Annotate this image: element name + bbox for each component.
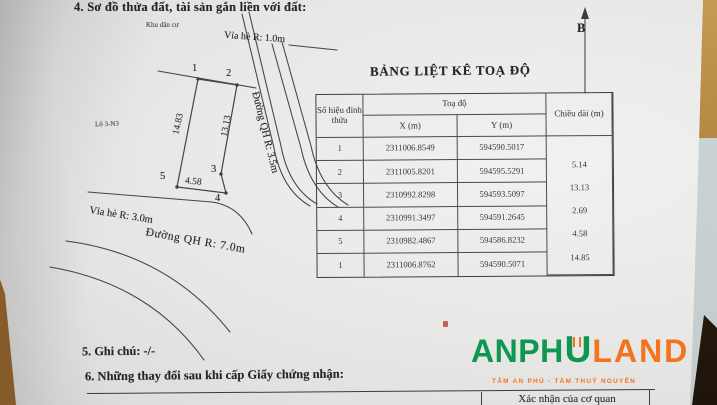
signature-table-divider: [481, 392, 482, 405]
boundary-extension-line: [158, 71, 256, 88]
row-vertex-id: 4: [317, 207, 364, 231]
vertex-point: [176, 186, 178, 188]
road-curve: [66, 241, 230, 332]
length-column: 5.14 13.13 2.69 4.58 14.85: [547, 136, 614, 276]
edge-length-right: 13.13: [220, 115, 234, 138]
label-underline: [289, 45, 337, 50]
col-header-length: Chiều dài (m): [546, 93, 612, 136]
vertex-point: [225, 192, 227, 194]
row-vertex-id: 1: [317, 254, 364, 278]
col-header-y: Y (m): [458, 114, 547, 137]
vertex-label-3: 3: [211, 164, 216, 175]
north-arrow-head: [581, 7, 589, 19]
sidewalk-bottom-label: Vỉa hè R: 3.0m: [89, 205, 154, 226]
vertex-label-2: 2: [226, 68, 231, 79]
edge-length-value: 5.14: [572, 153, 587, 176]
edge-length-value: 13.13: [570, 176, 590, 199]
signature-cell-label: Xác nhận của cơ quan: [486, 393, 648, 405]
row-x-value: 2310982.4867: [364, 230, 458, 254]
edge-length-left: 14.83: [172, 113, 186, 136]
edge-length-value: 14.85: [570, 246, 590, 269]
signature-table-divider: [649, 390, 650, 405]
logo-u-orange-bar: [579, 337, 582, 347]
row-vertex-id: 2: [317, 161, 364, 185]
vertex-point: [236, 84, 238, 86]
coordinate-table-title: BẢNG LIỆT KÊ TOẠ ĐỘ: [370, 62, 531, 79]
coordinate-table: Số hiệu đỉnh thửa Toạ độ Chiều dài (m) X…: [315, 92, 614, 278]
road-bottom-label: Đường QH R: 7.0m: [145, 226, 247, 255]
section6-heading: 6. Những thay đổi sau khi cấp Giấy chứng…: [85, 367, 344, 385]
row-x-value: 2311005.8201: [364, 160, 458, 184]
row-y-value: 594590.5017: [458, 136, 547, 160]
section5-heading: 5. Ghi chú: -/-: [82, 344, 155, 360]
col-header-coords: Toạ độ: [363, 93, 546, 115]
row-y-value: 594586.8232: [458, 229, 547, 253]
logo-u-glyph: U: [565, 329, 592, 370]
section4-heading: 4. Sơ đồ thửa đất, tài sản gắn liền với …: [74, 0, 307, 15]
vertex-label-5: 5: [160, 171, 165, 182]
logo-text-anph: ANPH: [471, 333, 564, 370]
row-vertex-id: 3: [317, 184, 364, 208]
photographed-document: 4. Sơ đồ thửa đất, tài sản gắn liền với …: [0, 0, 717, 405]
row-vertex-id: 1: [317, 138, 364, 162]
north-label: B: [577, 21, 585, 36]
col-header-vertex: Số hiệu đỉnh thửa: [316, 95, 363, 138]
anphuland-logo: ANPH U LAND: [471, 333, 689, 371]
logo-letter-u: U: [565, 329, 592, 371]
sidewalk-top-label: Vỉa hè R: 1.0m: [224, 30, 286, 45]
road-right-label: Đường QH R: 3.5m: [249, 91, 280, 175]
edge-length-value: 2.69: [572, 199, 587, 222]
row-x-value: 2310991.3497: [364, 207, 458, 231]
logo-u-orange-bar: [573, 337, 576, 347]
vertex-point: [220, 173, 222, 175]
edge-length-bottom: 4.58: [185, 176, 203, 188]
row-x-value: 2311006.8549: [364, 137, 458, 161]
area-label: Khu dân cư: [146, 21, 179, 29]
col-header-x: X (m): [364, 115, 458, 138]
logo-text-land: LAND: [592, 333, 689, 370]
lot-label: Lô 3-N3: [95, 120, 119, 129]
logo-tagline: TÂM AN PHÚ - TẦM THUỶ NGUYÊN: [492, 378, 636, 385]
row-vertex-id: 5: [317, 230, 364, 254]
row-y-value: 594591.2645: [458, 206, 547, 230]
row-x-value: 2310992.8298: [364, 183, 458, 207]
vertex-label-4: 4: [215, 193, 220, 204]
document-content: 4. Sơ đồ thửa đất, tài sản gắn liền với …: [0, 0, 717, 405]
row-y-value: 594593.5097: [458, 183, 547, 207]
row-x-value: 2311006.8762: [364, 253, 458, 277]
red-speck-mark: [443, 321, 448, 327]
row-y-value: 594590.5071: [458, 252, 547, 276]
edge-length-value: 4.58: [572, 223, 587, 246]
vertex-label-1: 1: [192, 63, 197, 74]
vertex-point: [197, 78, 199, 80]
row-y-value: 594595.5291: [458, 160, 547, 184]
